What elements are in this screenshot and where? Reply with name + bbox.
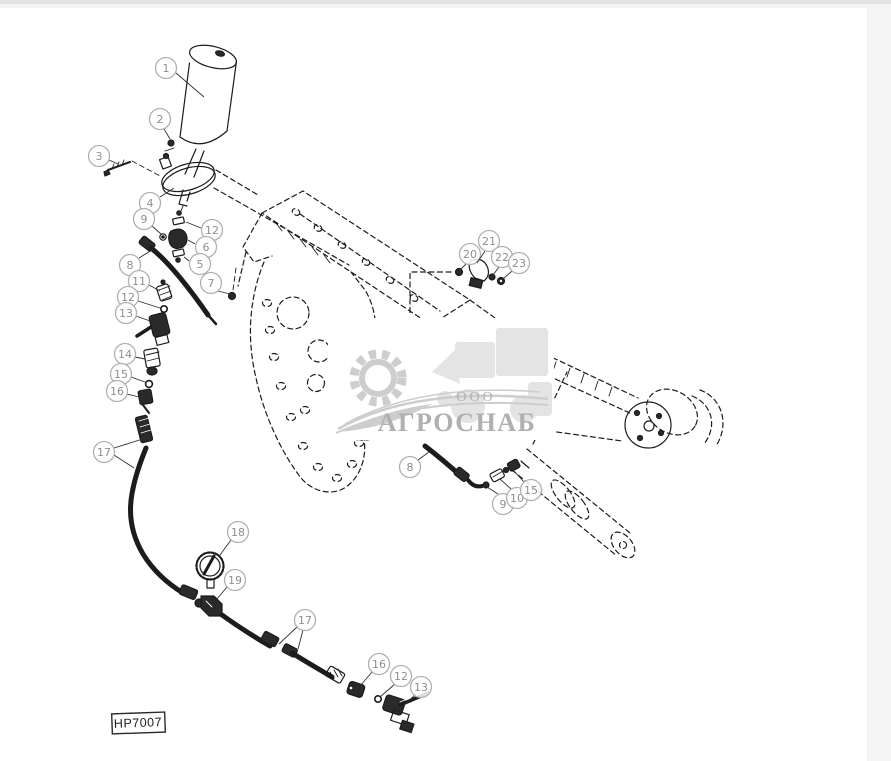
callout-16: 16	[107, 381, 140, 402]
callout-leader	[218, 291, 230, 294]
callout-leader	[217, 587, 227, 599]
part-20-23-fittings	[410, 259, 505, 316]
callout-leader	[139, 250, 152, 258]
part-7-bolt	[229, 268, 237, 300]
hose-17-lower	[222, 615, 345, 684]
callout-number: 16	[372, 658, 386, 671]
callout-leader	[460, 264, 466, 270]
callout-number: 6	[203, 241, 210, 254]
callout-9: 9	[134, 209, 162, 235]
callout-number: 2	[157, 113, 164, 126]
callout-number: 8	[127, 259, 134, 272]
callout-17: 17	[279, 610, 316, 650]
callout-leader	[188, 240, 195, 244]
callout-number: 7	[208, 277, 215, 290]
part-13-valve-left	[137, 312, 170, 345]
callout-leader	[135, 357, 145, 359]
part-11-connector	[156, 280, 172, 301]
plate-label: HP7007	[112, 712, 166, 734]
part-3-bolt	[104, 160, 162, 177]
callout-leader	[109, 160, 118, 164]
part-12-washer-left	[161, 306, 167, 312]
part-19-elbow	[195, 596, 222, 616]
callout-number: 15	[524, 484, 538, 497]
watermark-name: АГРОСНАБ	[378, 408, 537, 437]
callout-3: 3	[89, 146, 119, 167]
callout-leader	[360, 672, 372, 686]
assembly-line	[216, 170, 258, 195]
callout-number: 9	[141, 213, 148, 226]
watermark: ООО АГРОСНАБ	[328, 318, 554, 440]
callout-number: 14	[118, 348, 132, 361]
callout-number: 12	[205, 224, 219, 237]
parts-diagram: ООО АГРОСНАБ 123491265811121371415161718…	[0, 0, 891, 761]
callout-number: 9	[500, 498, 507, 511]
watermark-prefix: ООО	[456, 390, 495, 405]
callout-leader	[503, 271, 512, 279]
part-18-gauge	[197, 553, 224, 589]
callout-leader	[487, 487, 498, 494]
callout-number: 16	[110, 385, 124, 398]
callout-number: 1	[163, 62, 170, 75]
callout-leader	[220, 540, 231, 555]
callout-14: 14	[115, 344, 146, 365]
callout-leader	[164, 129, 170, 139]
callout-leader	[500, 479, 511, 489]
callout-number: 8	[407, 461, 414, 474]
callout-number: 22	[495, 251, 509, 264]
callout-20: 20	[460, 244, 481, 271]
callout-number: 4	[147, 197, 154, 210]
callout-leader	[514, 471, 524, 482]
callout-number: 15	[114, 368, 128, 381]
callout-number: 23	[512, 257, 526, 270]
callout-leader	[493, 267, 499, 275]
plate-label-text: HP7007	[114, 715, 163, 731]
part-14-connector	[144, 348, 161, 375]
callout-number: 5	[197, 258, 204, 271]
callout-leader	[418, 452, 429, 460]
callout-18: 18	[220, 522, 249, 556]
callout-leader	[186, 222, 201, 228]
part-15-oring-left	[146, 381, 153, 388]
callout-number: 19	[228, 574, 242, 587]
callout-number: 13	[414, 681, 428, 694]
callout-2: 2	[150, 109, 171, 140]
callout-leader	[138, 301, 160, 308]
callout-leader	[152, 226, 161, 234]
catalog-page: ООО АГРОСНАБ 123491265811121371415161718…	[0, 0, 891, 761]
callout-number: 20	[463, 248, 477, 261]
callout-16: 16	[360, 654, 390, 687]
callout-number: 17	[298, 614, 312, 627]
callout-leader	[298, 630, 303, 649]
callout-number: 13	[119, 307, 133, 320]
callout-number: 18	[231, 526, 245, 539]
part-16-fitting-left	[138, 389, 153, 413]
callout-8: 8	[400, 452, 430, 478]
callout-leader	[279, 627, 297, 644]
part-6-fitting-stack	[160, 211, 187, 262]
callout-number: 17	[97, 446, 111, 459]
callout-leader	[114, 455, 134, 468]
part-2-screw	[165, 140, 174, 151]
callout-leader	[184, 257, 189, 261]
callout-leader	[176, 73, 204, 97]
wheel-hub-face	[625, 402, 671, 448]
callout-leader	[127, 394, 139, 397]
callout-leader	[131, 377, 145, 382]
callout-leader	[136, 316, 150, 321]
part-4-clamp	[158, 154, 218, 201]
callout-number: 12	[394, 670, 408, 683]
callout-1: 1	[156, 58, 205, 98]
callout-7: 7	[201, 273, 231, 295]
callout-13: 13	[116, 303, 151, 324]
callout-5: 5	[184, 254, 211, 275]
hose-17-long	[131, 415, 199, 600]
hose-8-right	[425, 446, 521, 488]
callout-number: 11	[132, 275, 146, 288]
callout-number: 3	[96, 150, 103, 163]
callout-number: 21	[482, 235, 496, 248]
